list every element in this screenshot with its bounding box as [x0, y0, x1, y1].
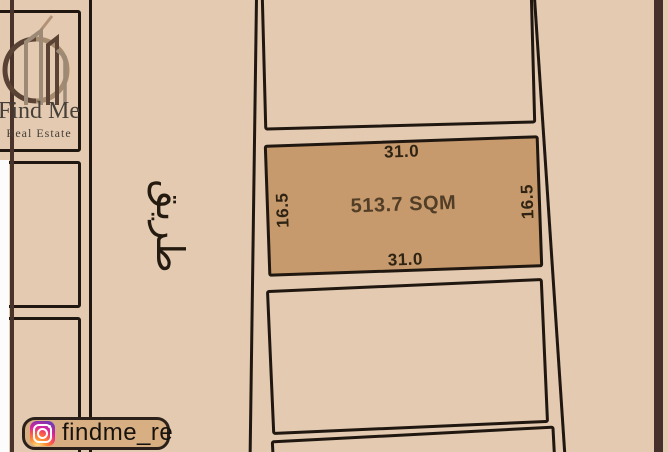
- instagram-icon: [30, 421, 55, 446]
- highlighted-plot: 31.0 513.7 SQM 31.0 16.5 16.5: [264, 135, 543, 277]
- main-plot-below: [266, 278, 549, 435]
- plot-bottom-width-label: 31.0: [271, 245, 541, 274]
- plot-right-depth-label: 16.5: [517, 171, 539, 232]
- brand-subtitle: Real Estate: [0, 126, 86, 141]
- instagram-icon-lens: [37, 428, 48, 439]
- plot-area-label: 513.7 SQM: [269, 189, 539, 221]
- plot-left-depth-label: 16.5: [272, 180, 294, 241]
- road-label: طريق: [139, 186, 201, 266]
- map-boundary-strip-right: [654, 0, 663, 452]
- instagram-icon-dot: [48, 425, 51, 428]
- road-right-edge-line: [249, 0, 258, 452]
- plot-top-width-label: 31.0: [267, 137, 537, 166]
- map-edge-white-strip: [0, 160, 9, 452]
- main-plot-top: [260, 0, 536, 131]
- findme-logo: Find Me Real Estate: [0, 0, 120, 150]
- plot-map-canvas: طريق 31.0 513.7 SQM 31.0 16.5 16.5 Find …: [0, 0, 668, 452]
- brand-title: Find Me: [0, 98, 86, 125]
- instagram-handle: findme_re: [62, 421, 173, 447]
- findme-building-logo-icon: [0, 12, 106, 112]
- instagram-badge[interactable]: findme_re: [22, 417, 170, 450]
